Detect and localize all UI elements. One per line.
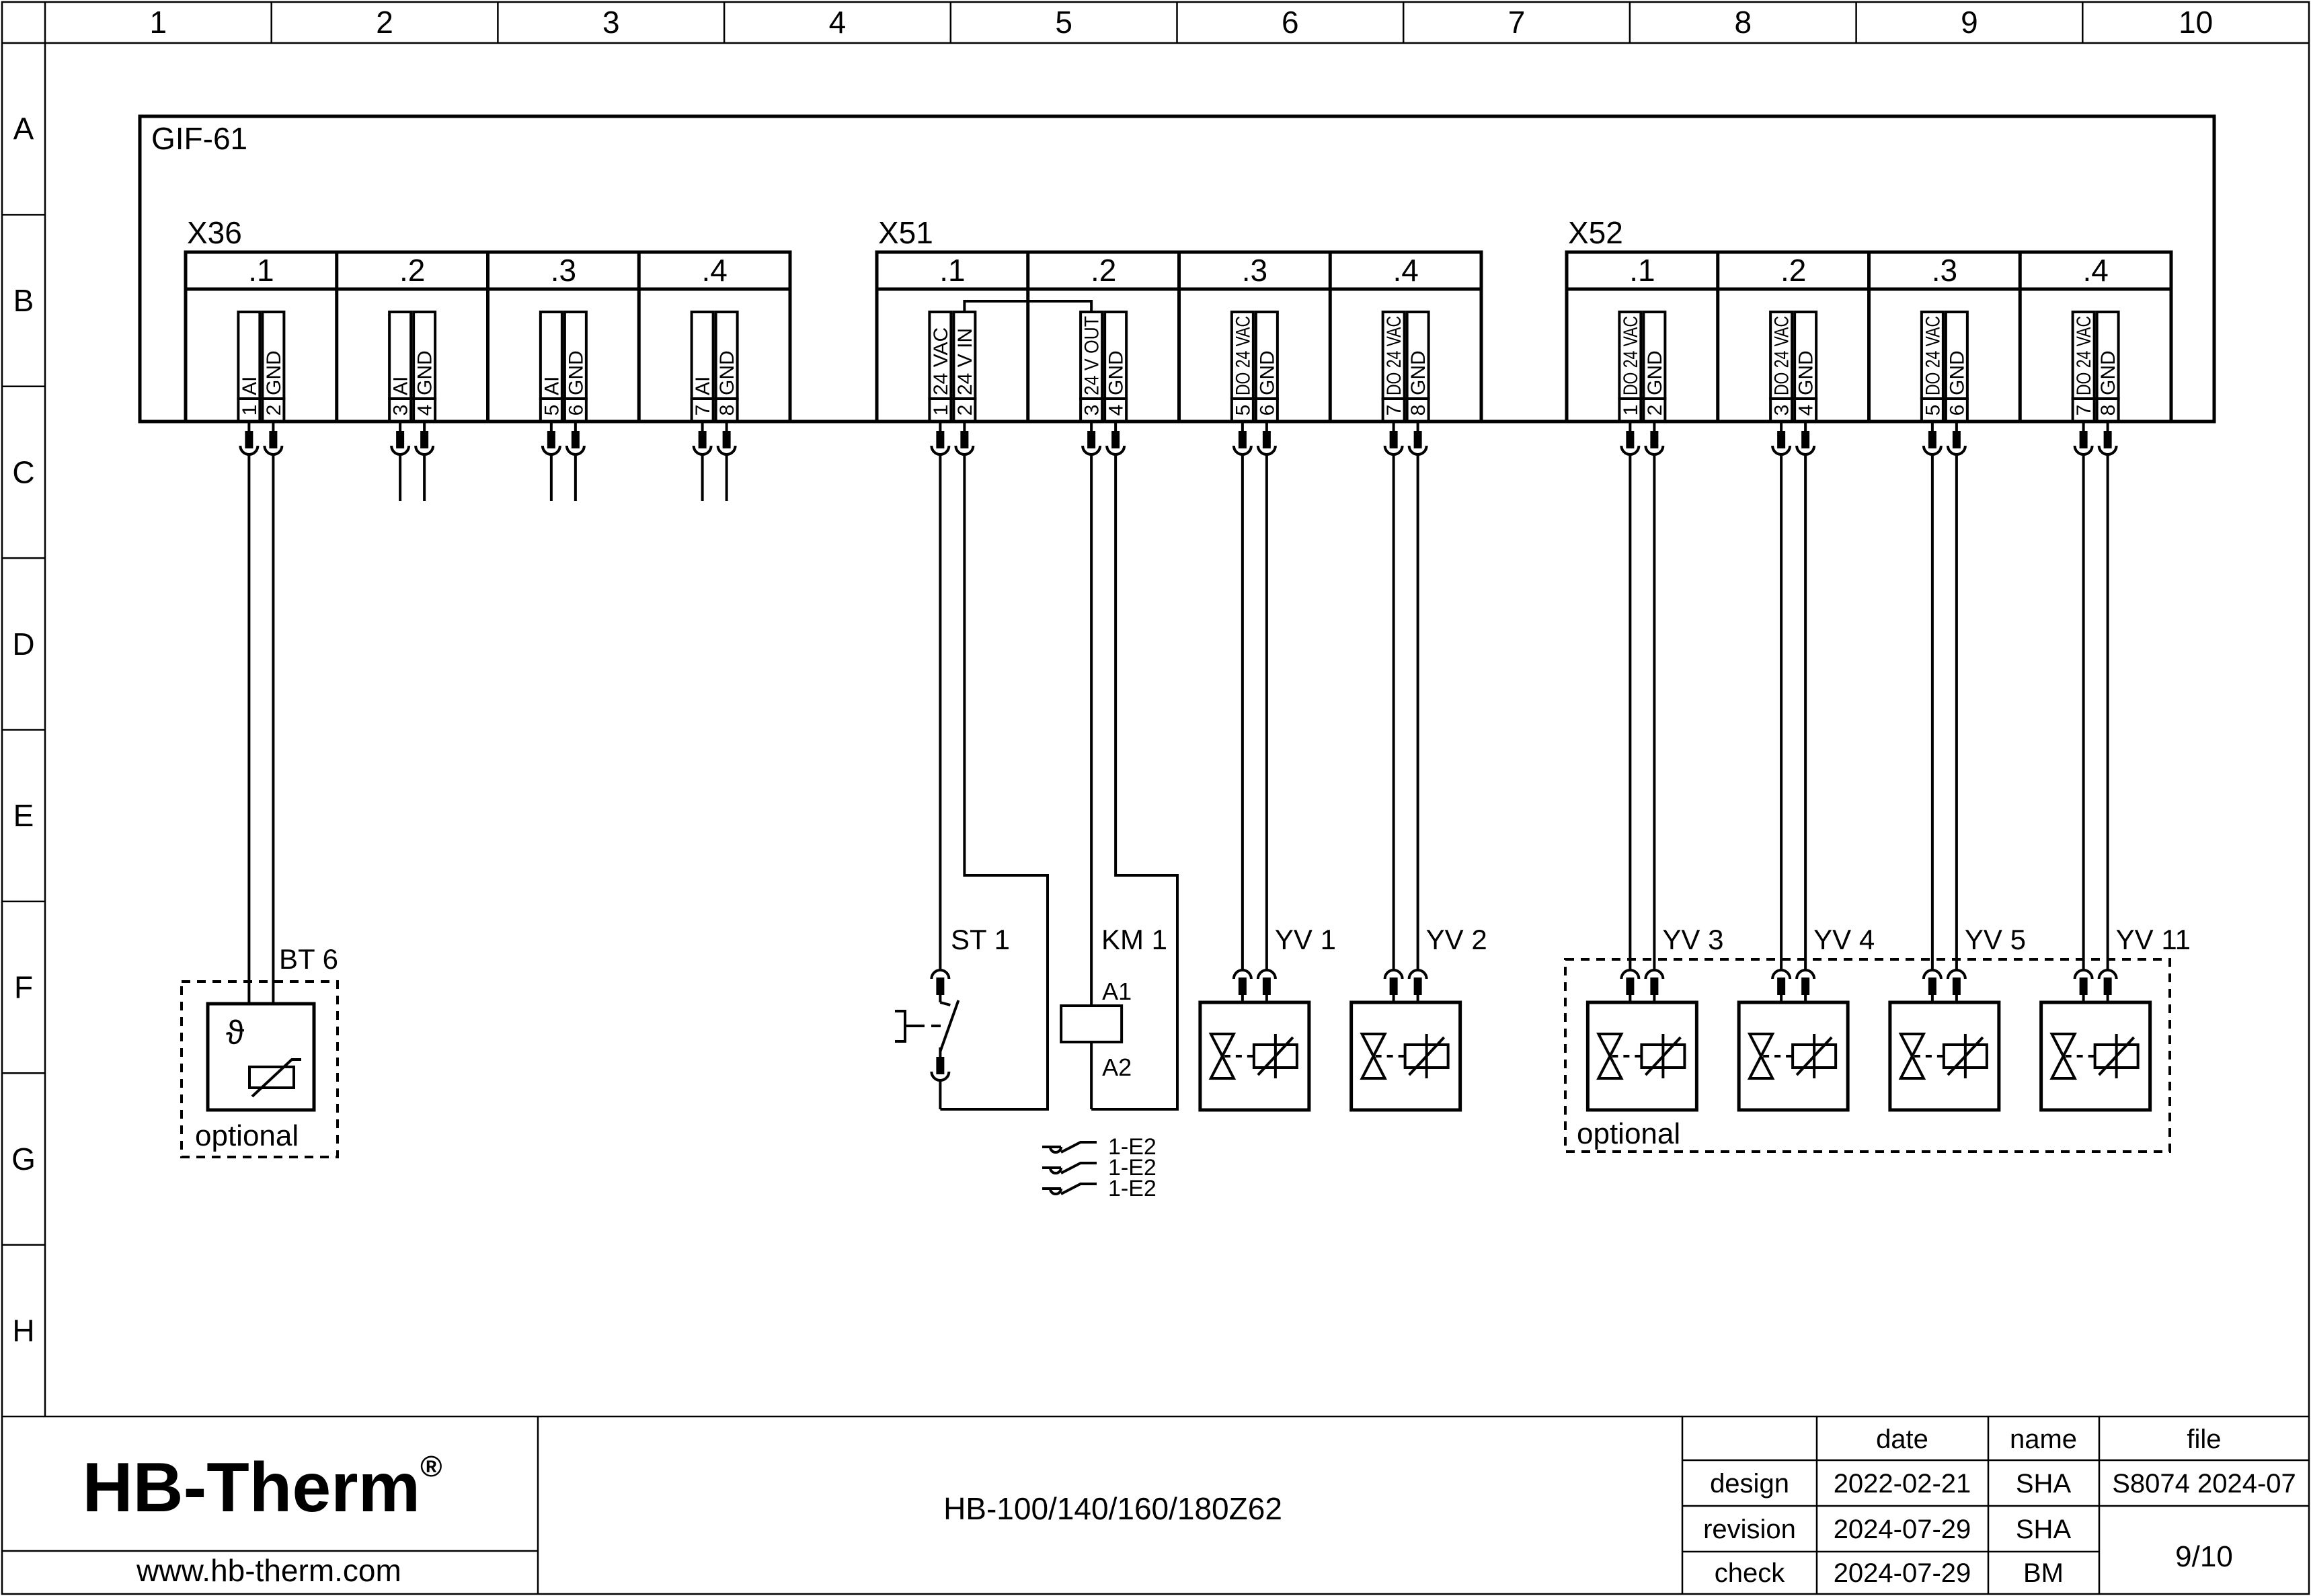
pin-signal-label: DO 24 VAC (1232, 316, 1254, 395)
valve-label: YV 2 (1426, 924, 1487, 955)
km1-contactor: A1A2KM 11-E21-E21-E2 (1042, 454, 1177, 1201)
row-ruler-label: H (12, 1313, 34, 1348)
plug-socket-icon (931, 1047, 949, 1080)
socket-plug-icon (1797, 970, 1814, 1002)
plug-socket-icon (2075, 422, 2092, 454)
valve-label: YV 11 (2116, 924, 2191, 955)
contactor-coil (1061, 1006, 1122, 1042)
pin-number: 1 (1620, 405, 1642, 416)
plug-socket-icon (1772, 422, 1790, 454)
pin-signal-label: GND (1407, 350, 1429, 395)
column-ruler-label: 8 (1734, 5, 1752, 40)
pin-signal-label: DO 24 VAC (1922, 316, 1944, 395)
sensor-outline (208, 1004, 314, 1110)
row-ruler-label: F (14, 970, 33, 1005)
pin-signal-label: AI (239, 376, 261, 395)
plug-socket-icon (1621, 422, 1639, 454)
coil-terminal-a1: A1 (1102, 977, 1132, 1005)
socket-plug-icon (931, 970, 949, 1002)
column-ruler-label: 6 (1282, 5, 1299, 40)
pin-number: 1 (239, 405, 261, 416)
section-label: .4 (701, 253, 727, 288)
device-label: GIF-61 (151, 121, 247, 156)
pin-number: 8 (2097, 405, 2119, 416)
page-border (2, 2, 2309, 1594)
valve-3: YV 3 (1588, 924, 1723, 1110)
pin-number: 1 (930, 405, 952, 416)
pin-number: 3 (390, 405, 412, 416)
external-devices: ϑBT 6optionalST 1A1A2KM 11-E21-E21-E2opt… (182, 454, 2191, 1201)
pin-signal-label: 24 V OUT (1081, 316, 1103, 395)
plug-socket-icon (1234, 422, 1251, 454)
solenoid-valve-icon (1750, 1034, 1836, 1078)
connector-x52: X52.1DO 24 VAC1GND2.2DO 24 VAC3GND4.3DO … (1567, 215, 2171, 422)
switch-loop-wire (940, 454, 1048, 1109)
pin-signal-label: 24 VAC (930, 327, 952, 395)
plug-socket-icon (955, 422, 973, 454)
section-label: .4 (2082, 253, 2108, 288)
section-label: .1 (939, 253, 965, 288)
solenoid-valve-icon (1598, 1034, 1684, 1078)
plug-socket-icon (391, 422, 409, 454)
pin-number: 2 (954, 405, 976, 416)
revision-name: SHA (2016, 1515, 2072, 1544)
solenoid-valve-icon (1211, 1034, 1297, 1078)
valve-2: YV 2 (1352, 924, 1487, 1110)
row-ruler-label: D (12, 627, 34, 662)
row-ruler-label: C (12, 454, 34, 489)
valve-5: YV 5 (1890, 924, 2026, 1110)
plug-socket-icon (1083, 422, 1100, 454)
design-name: SHA (2016, 1469, 2072, 1499)
optional-note: optional (195, 1119, 299, 1152)
gif-61-outline (140, 116, 2214, 422)
plug-socket-icon (567, 422, 584, 454)
column-ruler-label: 5 (1055, 5, 1072, 40)
col-header-name: name (2010, 1425, 2077, 1454)
pin-signal-label: GND (716, 350, 738, 395)
row-ruler-label: G (11, 1142, 36, 1176)
model-title: HB-100/140/160/180Z62 (943, 1491, 1282, 1526)
row-ruler: ABCDEFGH (2, 112, 45, 1349)
pin-number: 2 (263, 405, 285, 416)
bt6-sensor: ϑBT 6optional (182, 943, 338, 1157)
column-ruler-label: 9 (1961, 5, 1978, 40)
hb-therm-logo: HB-Therm® (82, 1449, 442, 1527)
solenoid-valve-icon (1901, 1034, 1987, 1078)
valve-label: YV 5 (1965, 924, 2026, 955)
design-date: 2022-02-21 (1834, 1469, 1971, 1499)
coil-terminal-a2: A2 (1102, 1053, 1132, 1081)
plug-socket-icon (1797, 422, 1814, 454)
solenoid-valve-icon (1362, 1034, 1448, 1078)
pin-signal-label: GND (2097, 350, 2119, 395)
valve-label: YV 1 (1275, 924, 1336, 955)
pin-number: 4 (1795, 405, 1817, 416)
socket-plug-icon (1234, 970, 1251, 1002)
section-label: .2 (1091, 253, 1116, 288)
plug-socket-icon (543, 422, 560, 454)
column-ruler-label: 10 (2179, 5, 2213, 40)
gif-61-device: GIF-61 (140, 116, 2214, 422)
socket-plug-icon (1772, 970, 1790, 1002)
valve-4: YV 4 (1739, 924, 1875, 1110)
socket-plug-icon (1409, 970, 1427, 1002)
check-date: 2024-07-29 (1834, 1558, 1971, 1588)
column-ruler-label: 7 (1508, 5, 1526, 40)
plug-socket-icon (2099, 422, 2117, 454)
pin-signal-label: GND (1946, 350, 1968, 395)
plug-socket-icon (694, 422, 711, 454)
column-ruler: 12345678910 (150, 2, 2214, 43)
valve-label: YV 3 (1662, 924, 1723, 955)
pin-number: 6 (1946, 405, 1968, 416)
socket-plug-icon (1645, 970, 1663, 1002)
connector-label: X51 (878, 215, 933, 250)
sheet-number: 9/10 (2175, 1540, 2233, 1573)
st1-label: ST 1 (951, 924, 1010, 955)
pin-number: 7 (1383, 405, 1405, 416)
connector-label: X52 (1568, 215, 1623, 250)
pin-number: 5 (1922, 405, 1944, 416)
pin-number: 5 (1232, 405, 1254, 416)
pin-number: 3 (1081, 405, 1103, 416)
pin-number: 7 (2073, 405, 2095, 416)
plug-socket-icon (718, 422, 736, 454)
pin-signal-label: DO 24 VAC (1620, 316, 1642, 395)
socket-plug-icon (1258, 970, 1276, 1002)
optional-note: optional (1577, 1117, 1680, 1150)
valve-6: YV 11 (2041, 924, 2191, 1110)
title-block: HB-Therm® www.hb-therm.com HB-100/140/16… (2, 1417, 2309, 1594)
st1-switch: ST 1 (895, 454, 1048, 1109)
row-ruler-label: A (13, 112, 34, 147)
section-label: .1 (1629, 253, 1655, 288)
aux-contact-icon (1042, 1142, 1097, 1152)
aux-contact-icon (1042, 1163, 1097, 1173)
revision-date: 2024-07-29 (1834, 1515, 1971, 1544)
pin-number: 4 (1105, 405, 1128, 416)
solenoid-valve-icon (2052, 1034, 2138, 1078)
row-ruler-label: E (13, 798, 34, 833)
plug-socket-icon (931, 422, 949, 454)
manual-actuator-icon (895, 1011, 915, 1041)
socket-plug-icon (2075, 970, 2092, 1002)
column-ruler-label: 1 (150, 5, 167, 40)
pin-signal-label: AI (541, 376, 563, 395)
connector-x51: X51.124 VAC124 V IN2.224 V OUT3GND4.3DO … (877, 215, 1481, 422)
col-header-file: file (2187, 1425, 2221, 1454)
row-label-revision: revision (1703, 1515, 1796, 1544)
connector-label: X36 (187, 215, 242, 250)
pin-number: 3 (1771, 405, 1793, 416)
socket-plug-icon (1948, 970, 1965, 1002)
contact-fixed-tick (940, 1002, 950, 1005)
check-name: BM (2023, 1558, 2064, 1588)
pin-signal-label: DO 24 VAC (2073, 316, 2095, 395)
aux-contact-ref: 1-E2 (1108, 1176, 1157, 1201)
pin-number: 2 (1644, 405, 1666, 416)
row-ruler-label: B (13, 283, 34, 318)
pin-signal-label: DO 24 VAC (1771, 316, 1793, 395)
section-label: .3 (1242, 253, 1267, 288)
file-value: S8074 2024-07 (2112, 1469, 2296, 1499)
plug-socket-icon (1948, 422, 1965, 454)
plug-socket-icon (1924, 422, 1941, 454)
section-label: .3 (1932, 253, 1957, 288)
connector-x36: X36.1AI1GND2.2AI3GND4.3AI5GND6.4AI7GND8 (186, 215, 790, 422)
pin-number: 5 (541, 405, 563, 416)
valve-1: YV 1 (1200, 924, 1336, 1110)
section-label: .2 (399, 253, 425, 288)
section-label: .2 (1780, 253, 1806, 288)
pin-number: 8 (716, 405, 738, 416)
plug-socket-icon (416, 422, 433, 454)
pin-signal-label: GND (263, 350, 285, 395)
socket-plug-icon (2099, 970, 2117, 1002)
pin-signal-label: GND (1256, 350, 1278, 395)
pin-signal-label: AI (390, 376, 412, 395)
section-label: .1 (248, 253, 274, 288)
plug-socket-icon (1645, 422, 1663, 454)
pin-number: 8 (1407, 405, 1429, 416)
website-link[interactable]: www.hb-therm.com (136, 1553, 401, 1588)
bt6-label: BT 6 (279, 943, 338, 975)
plug-socket-icon (1385, 422, 1403, 454)
pin-signal-label: DO 24 VAC (1383, 316, 1405, 395)
section-label: .3 (551, 253, 576, 288)
switch-contact-blade (940, 1000, 958, 1051)
section-label: .4 (1393, 253, 1418, 288)
column-ruler-label: 2 (376, 5, 393, 40)
pin-signal-label: GND (414, 350, 436, 395)
column-ruler-label: 4 (829, 5, 847, 40)
plug-socket-icon (264, 422, 282, 454)
socket-plug-icon (1924, 970, 1941, 1002)
col-header-date: date (1876, 1425, 1928, 1454)
valve-label: YV 4 (1813, 924, 1875, 955)
pin-signal-label: GND (1644, 350, 1666, 395)
plug-socket-icon (1409, 422, 1427, 454)
column-ruler-label: 3 (602, 5, 620, 40)
plug-socket-icon (1258, 422, 1276, 454)
row-label-design: design (1710, 1469, 1789, 1499)
pin-number: 7 (692, 405, 714, 416)
pin-signal-label: GND (565, 350, 587, 395)
socket-plug-icon (1385, 970, 1403, 1002)
socket-plug-icon (1621, 970, 1639, 1002)
pin-signal-label: GND (1105, 350, 1128, 395)
km1-label: KM 1 (1101, 924, 1167, 955)
coil-loop-wire (1091, 454, 1177, 1109)
connectors: X36.1AI1GND2.2AI3GND4.3AI5GND6.4AI7GND8X… (186, 215, 2171, 422)
plug-socket-icon (240, 422, 258, 454)
pin-signal-label: GND (1795, 350, 1817, 395)
temperature-theta-symbol: ϑ (226, 1014, 244, 1051)
pin-signal-label: 24 V IN (954, 328, 976, 395)
pin-number: 6 (565, 405, 587, 416)
plug-socket-icon (1107, 422, 1124, 454)
pin-signal-label: AI (692, 376, 714, 395)
schematic-sheet: 12345678910 ABCDEFGH GIF-61 X36.1AI1GND2… (0, 0, 2311, 1596)
pin-number: 6 (1256, 405, 1278, 416)
row-label-check: check (1715, 1558, 1785, 1588)
aux-contact-icon (1042, 1184, 1097, 1194)
pin-number: 4 (414, 405, 436, 416)
